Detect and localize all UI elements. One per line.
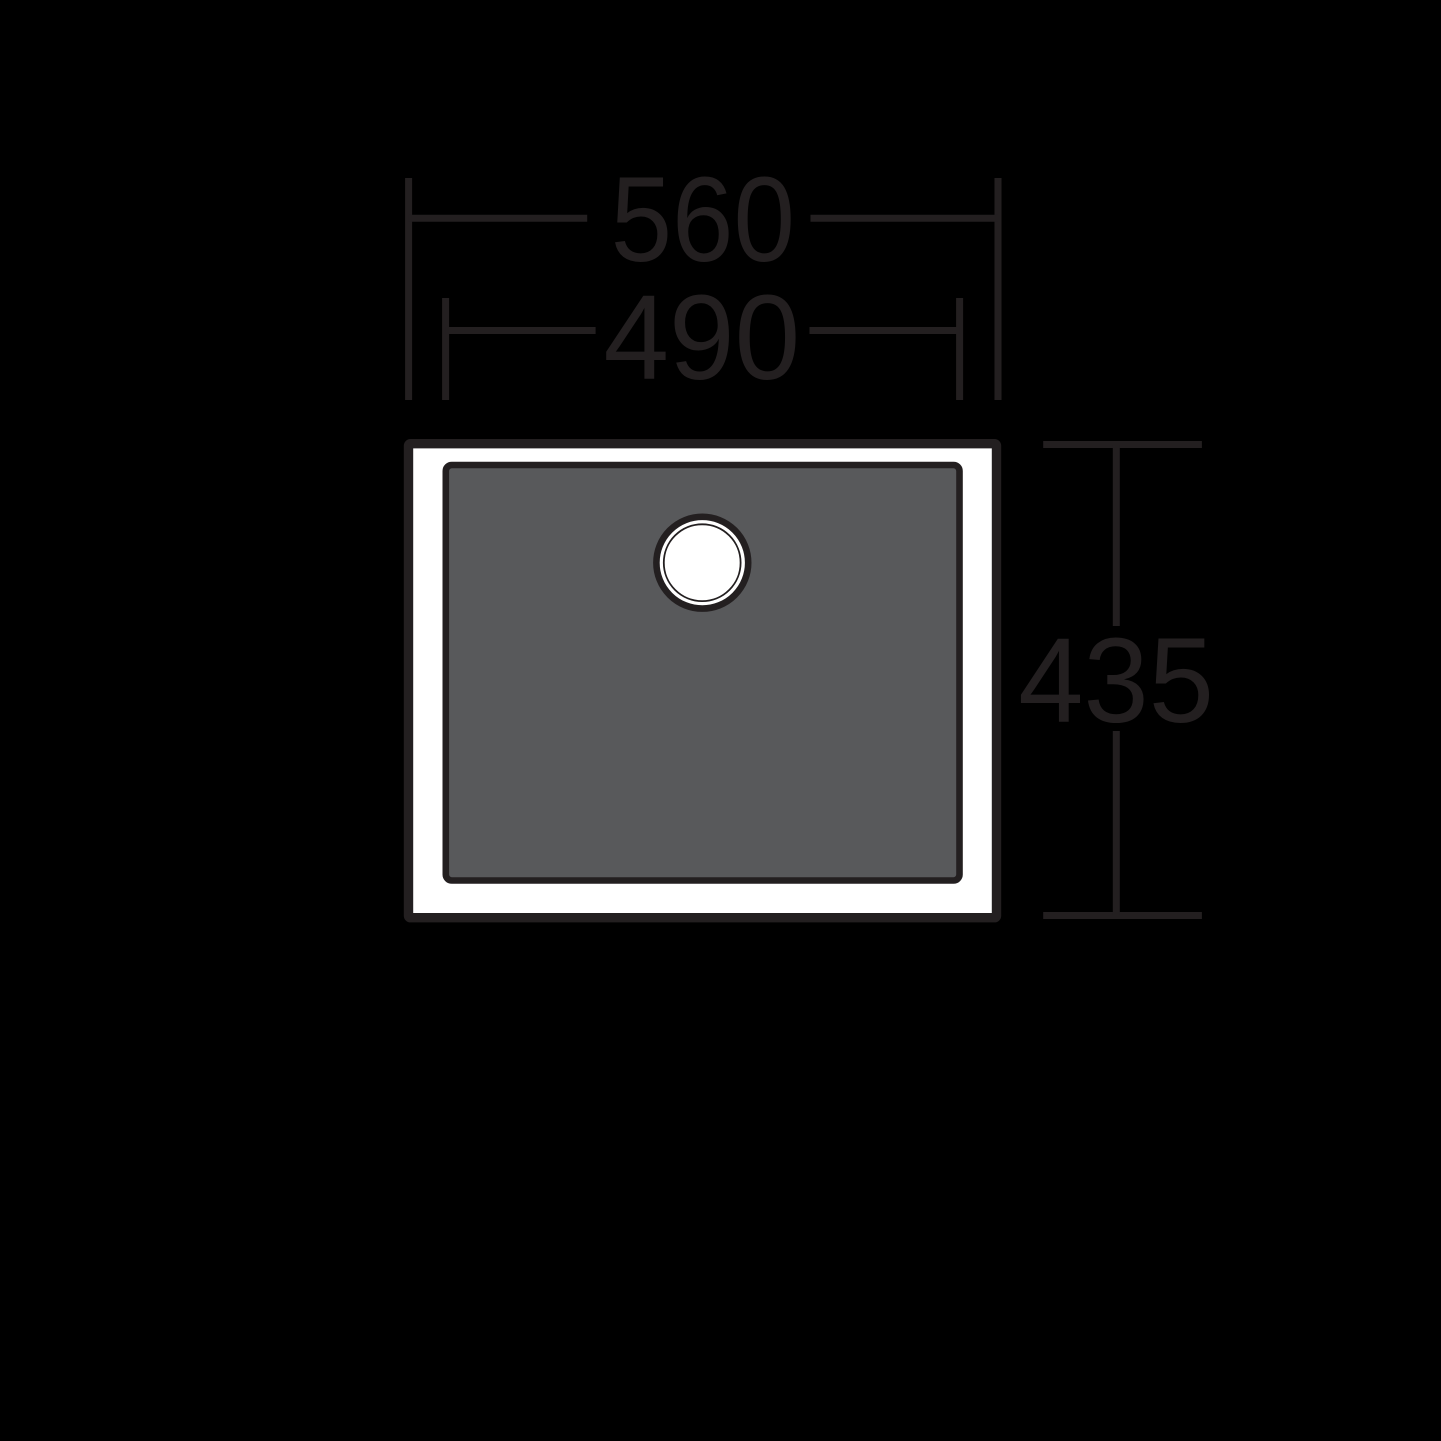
svg-text:490: 490 [603,269,800,405]
svg-text:435: 435 [1018,612,1214,748]
svg-text:560: 560 [611,151,795,287]
